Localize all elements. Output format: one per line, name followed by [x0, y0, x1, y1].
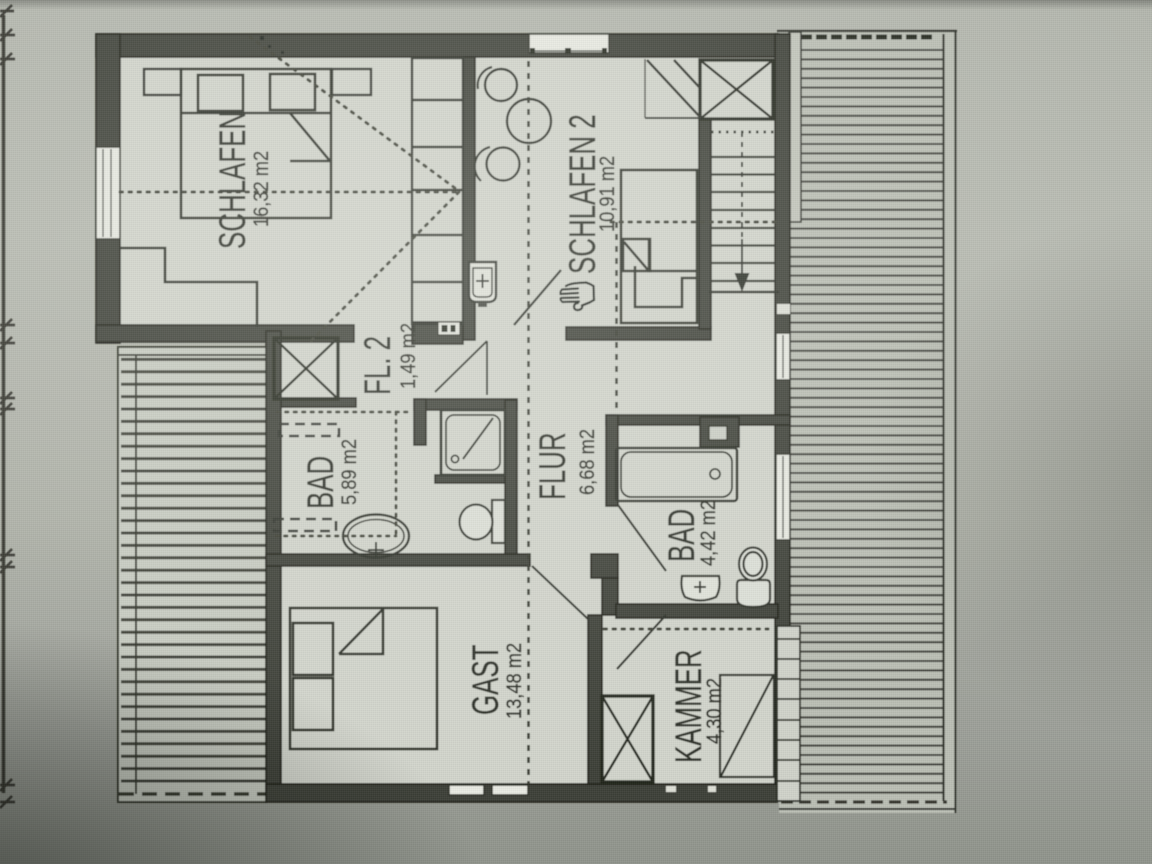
svg-text:BAD: BAD	[660, 509, 702, 562]
svg-text:13,48 m2: 13,48 m2	[503, 643, 526, 719]
svg-text:4,30 m2: 4,30 m2	[703, 678, 726, 744]
svg-text:10,91 m2: 10,91 m2	[596, 156, 619, 232]
svg-text:GAST: GAST	[464, 645, 506, 715]
svg-text:4,42 m2: 4,42 m2	[697, 500, 720, 566]
svg-text:FLUR: FLUR	[531, 432, 573, 500]
svg-text:6,68 m2: 6,68 m2	[576, 429, 599, 495]
svg-text:FL. 2: FL. 2	[356, 336, 398, 395]
svg-text:SCHLAFEN: SCHLAFEN	[211, 111, 253, 249]
svg-text:BAD: BAD	[299, 456, 341, 509]
svg-text:16,32 m2: 16,32 m2	[250, 151, 273, 227]
svg-text:1,49 m2: 1,49 m2	[397, 323, 420, 389]
svg-text:5,89 m2: 5,89 m2	[338, 439, 361, 505]
